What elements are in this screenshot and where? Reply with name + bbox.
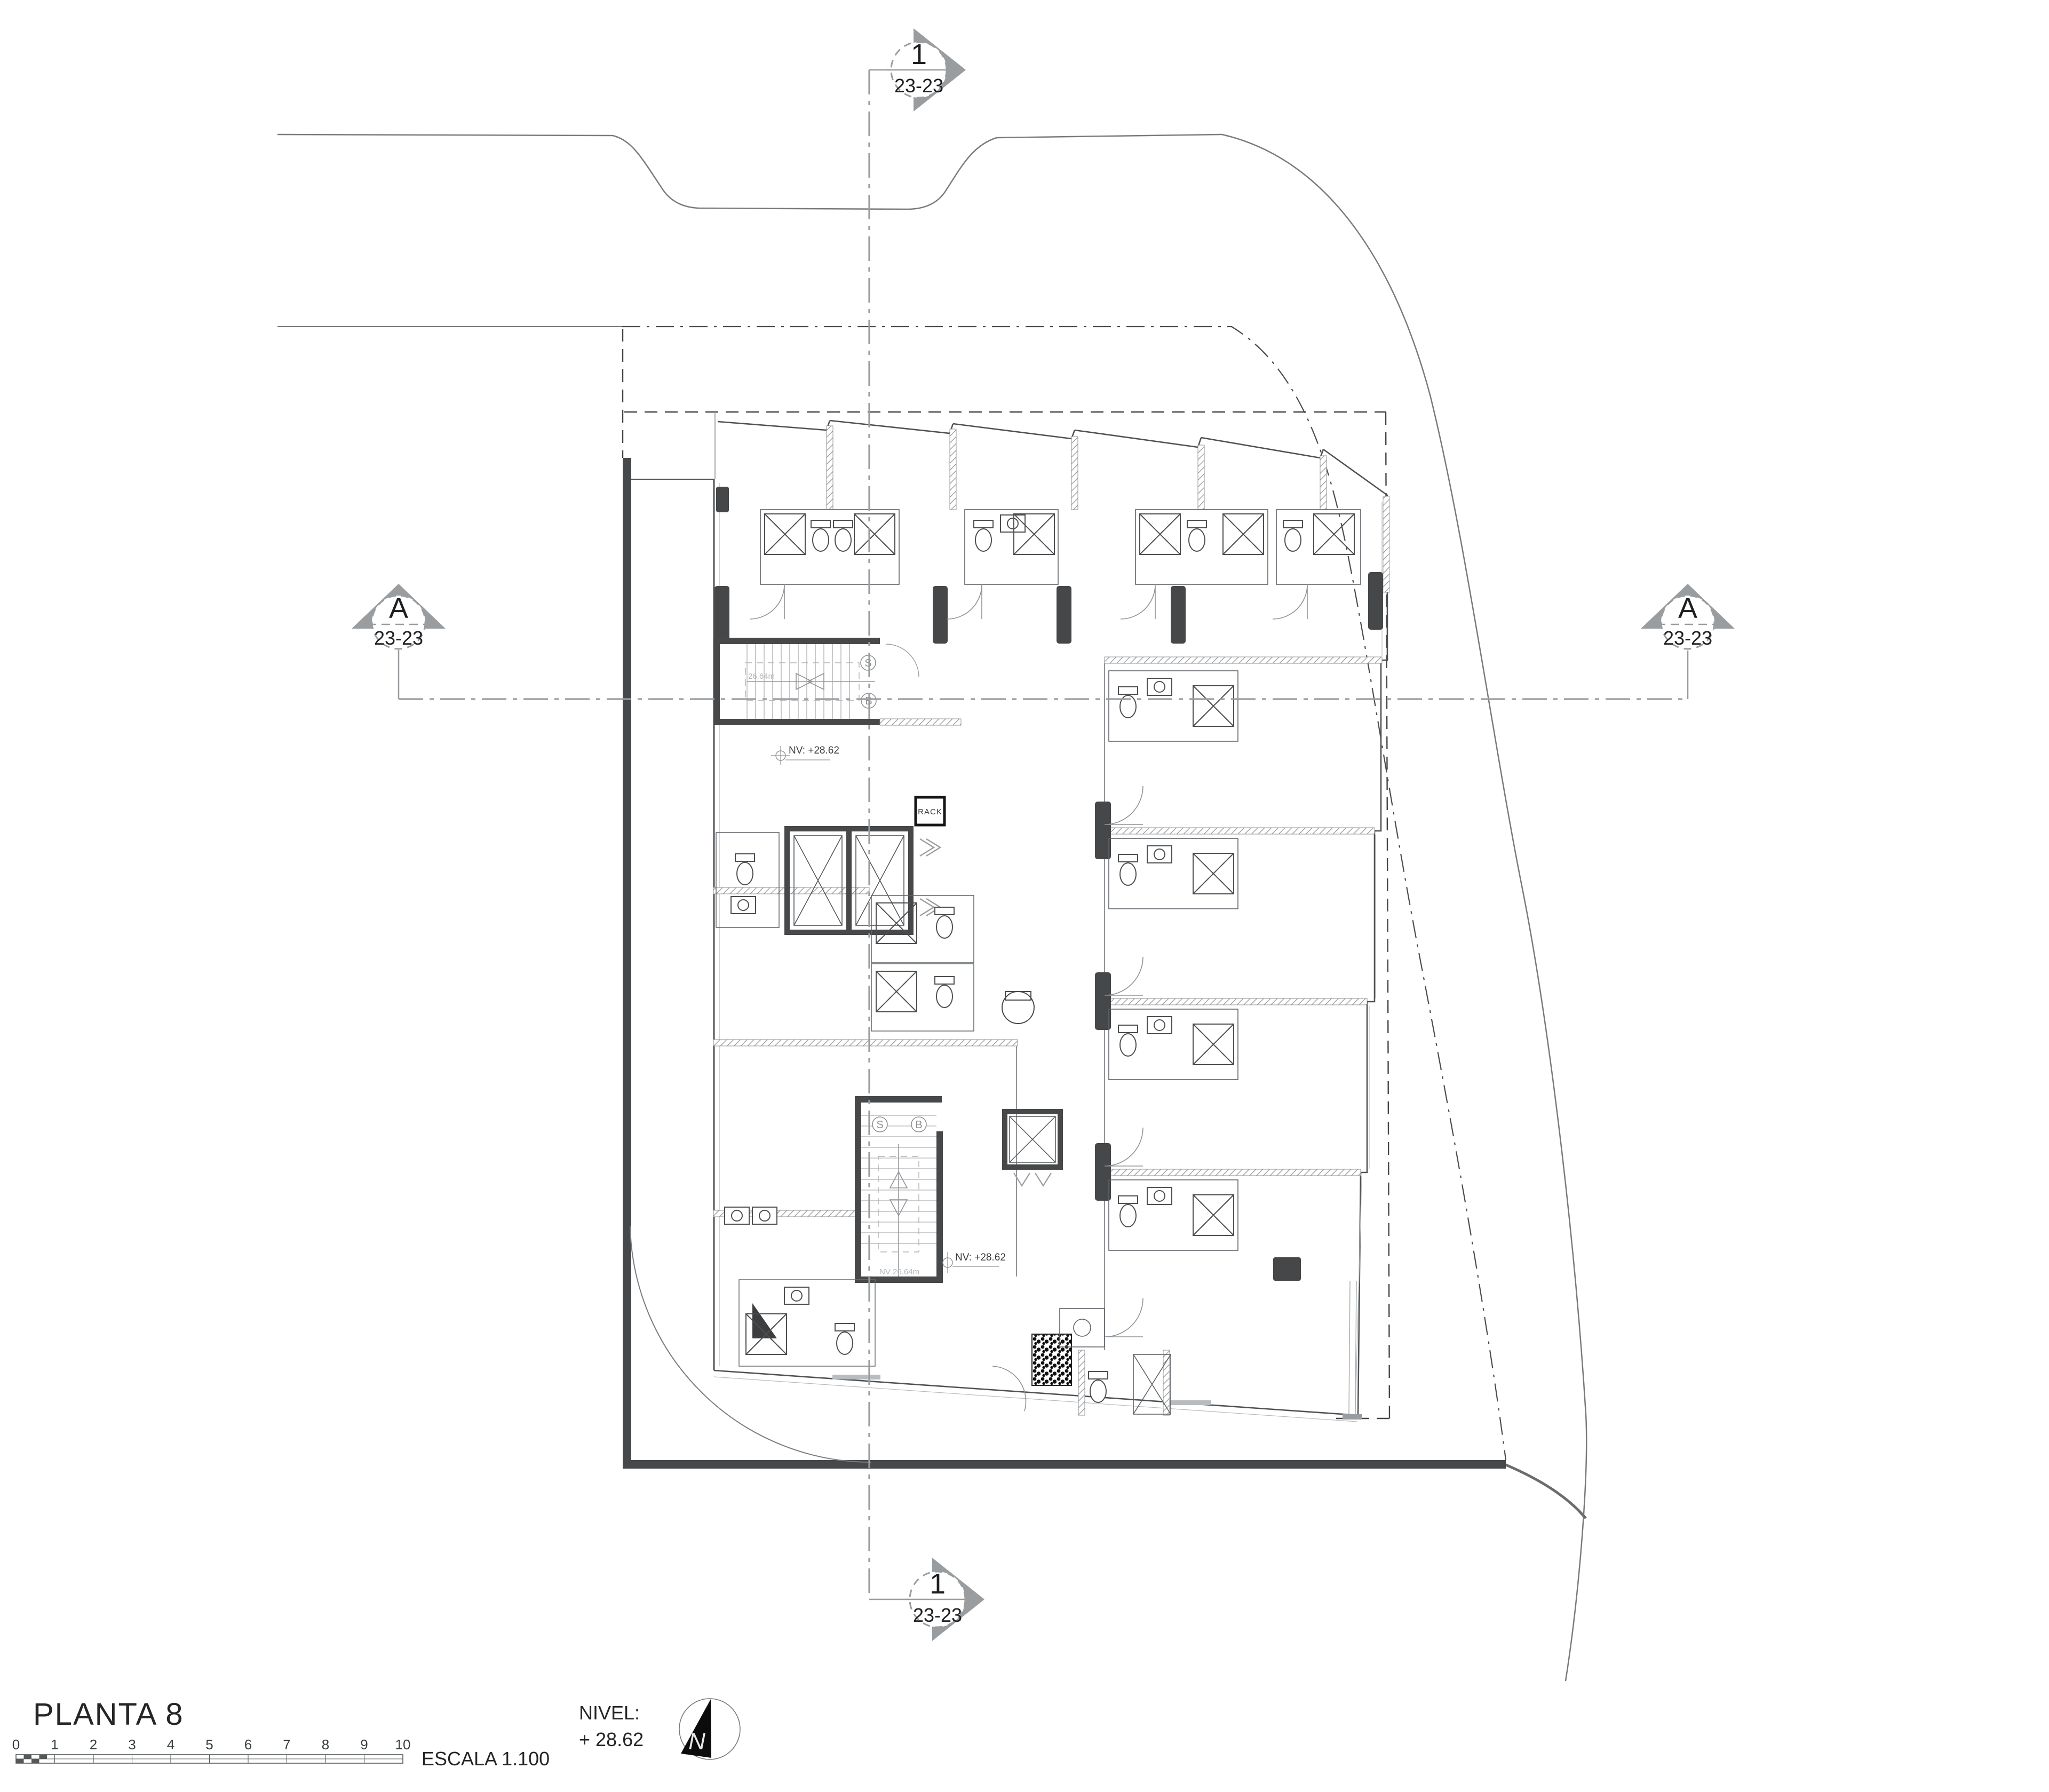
level-value: + 28.62 xyxy=(579,1728,644,1750)
stair-up-label-lower: S xyxy=(876,1119,883,1131)
boundary-wall-bottom xyxy=(623,1460,1506,1469)
scale-bar: 0 1 2 3 4 5 6 7 8 9 10 xyxy=(12,1737,411,1763)
curb-curve-bottom xyxy=(1505,1464,1586,1518)
structural-columns xyxy=(714,487,1383,1281)
section-marker-left-ref: 23-23 xyxy=(374,627,423,649)
scale-tick: 1 xyxy=(51,1737,58,1753)
stair-core-lower: S B NV 26.64m xyxy=(855,1096,943,1283)
section-marker-right-id: A xyxy=(1678,592,1697,624)
section-marker-top: 1 23-23 xyxy=(887,28,966,112)
stair-core-upper: S B 26.64m xyxy=(713,638,961,725)
scale-tick: 4 xyxy=(167,1737,174,1753)
scale-tick: 8 xyxy=(322,1737,329,1753)
section-marker-bottom: 1 23-23 xyxy=(906,1558,984,1641)
section-marker-right: A 23-23 xyxy=(1641,584,1735,649)
right-facade-hatch xyxy=(1383,496,1389,592)
scale-tick: 0 xyxy=(12,1737,20,1753)
scale-label: ESCALA 1.100 xyxy=(422,1748,550,1770)
north-arrow: N xyxy=(679,1699,740,1759)
scale-tick: 5 xyxy=(205,1737,213,1753)
section-marker-top-ref: 23-23 xyxy=(894,75,943,97)
section-marker-left: A 23-23 xyxy=(352,584,446,649)
stair-area-note-lower: NV 26.64m xyxy=(879,1267,919,1276)
mid-pods xyxy=(871,895,974,1031)
level-block: NIVEL: + 28.62 xyxy=(579,1702,644,1750)
section-marker-top-id: 1 xyxy=(911,38,927,70)
elevator-shaft-left xyxy=(794,836,842,925)
scale-tick: 9 xyxy=(360,1737,368,1753)
section-marker-left-id: A xyxy=(389,592,408,624)
stair-down-label-lower: B xyxy=(915,1119,922,1131)
right-facade-glass xyxy=(1355,502,1382,1412)
duct-shaft-speckled xyxy=(1032,1334,1071,1385)
section-marker-bottom-ref: 23-23 xyxy=(913,1604,962,1626)
top-facade xyxy=(718,421,1387,495)
section-marker-bottom-id: 1 xyxy=(930,1568,946,1600)
level-note-upper-text: NV: +28.62 xyxy=(789,745,839,756)
north-letter: N xyxy=(688,1728,705,1755)
scale-tick: 10 xyxy=(395,1737,411,1753)
section-marker-right-ref: 23-23 xyxy=(1663,627,1712,649)
floor-plan-sheet: S B 26.64m RACK xyxy=(0,0,2049,1792)
level-note-upper: NV: +28.62 xyxy=(771,745,839,765)
small-shaft xyxy=(1002,1109,1063,1186)
scale-tick: 2 xyxy=(90,1737,97,1753)
rack-label: RACK xyxy=(918,807,942,816)
stair-up-label: S xyxy=(864,657,871,669)
stair-area-note-upper: 26.64m xyxy=(748,672,775,681)
scale-tick: 3 xyxy=(128,1737,136,1753)
elevator-door-chevrons xyxy=(920,839,940,916)
scale-tick: 6 xyxy=(244,1737,252,1753)
level-note-lower: NV: +28.62 xyxy=(943,1252,1006,1273)
level-label: NIVEL: xyxy=(579,1702,640,1724)
top-row-doors xyxy=(750,584,1307,619)
window-bay-bottom-right xyxy=(1349,1281,1356,1415)
corridor-walls xyxy=(1016,663,1105,1350)
boundary-wall-left xyxy=(623,458,631,1469)
elevator-shaft-right xyxy=(856,836,904,925)
drawing-title: PLANTA 8 xyxy=(33,1697,184,1732)
round-fixture xyxy=(1002,992,1034,1024)
level-note-lower-text: NV: +28.62 xyxy=(955,1252,1006,1263)
turning-arc xyxy=(630,1226,871,1462)
scale-tick: 7 xyxy=(283,1737,290,1753)
